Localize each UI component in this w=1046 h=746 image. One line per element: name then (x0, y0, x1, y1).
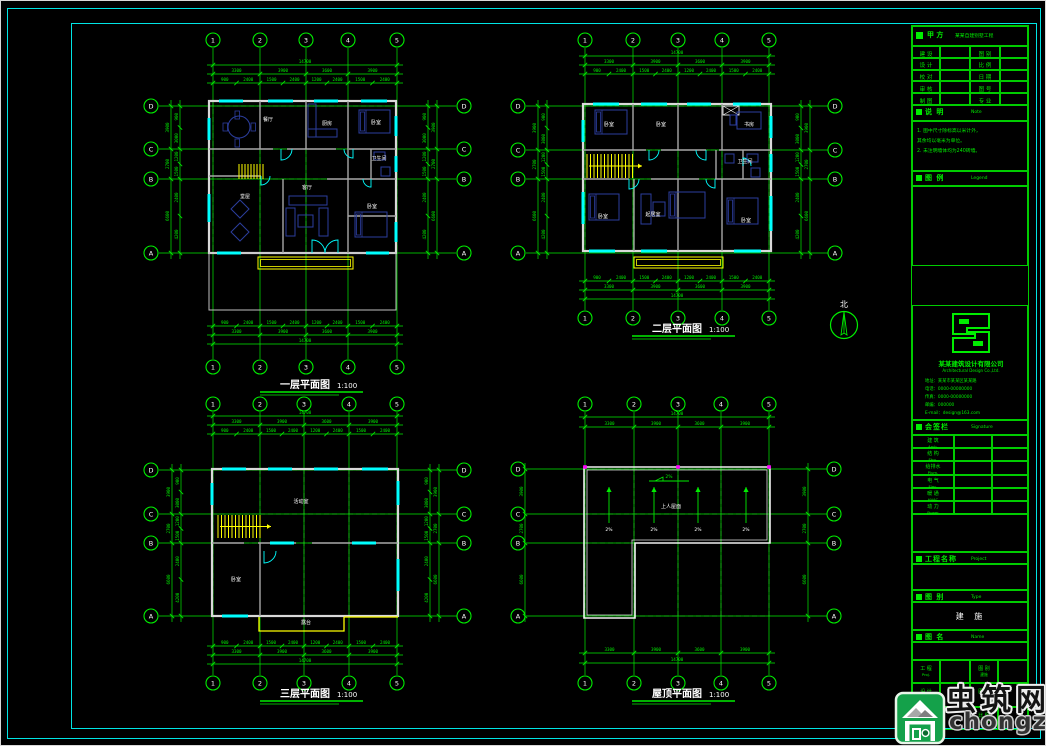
svg-text:2700: 2700 (165, 158, 170, 169)
svg-text:3900: 3900 (740, 421, 751, 426)
svg-text:1:100: 1:100 (337, 691, 357, 699)
tb-cell: 日 期 (970, 70, 1000, 82)
tb-cell: 图 号 (970, 81, 1000, 93)
svg-text:1500: 1500 (639, 68, 650, 73)
svg-text:C: C (832, 510, 837, 518)
svg-text:3900: 3900 (277, 419, 288, 424)
building: 2%2%2%2%2% (583, 465, 771, 618)
svg-text:3900: 3900 (368, 649, 379, 654)
svg-text:5: 5 (767, 679, 771, 687)
svg-text:3000: 3000 (795, 133, 800, 144)
plan-svg-4: 1122334455DDCCBBAA1470033003900360039003… (501, 391, 853, 711)
section-sub: Legend (971, 176, 988, 181)
svg-text:3900: 3900 (804, 122, 809, 133)
watermark-logo-icon (894, 691, 946, 745)
svg-text:3300: 3300 (231, 68, 242, 73)
tb-cell (940, 58, 970, 70)
section-label: 说 明 (925, 107, 944, 117)
svg-text:3600: 3600 (321, 649, 332, 654)
svg-text:2: 2 (631, 314, 635, 322)
tb-cell (940, 93, 970, 105)
svg-text:书房: 书房 (744, 121, 754, 128)
svg-text:14700: 14700 (671, 293, 684, 298)
company-contact: E-mail：design@163.com (925, 410, 980, 416)
svg-text:3300: 3300 (231, 649, 242, 654)
svg-text:3900: 3900 (740, 59, 751, 64)
section-icon (916, 175, 922, 181)
tb-cell (940, 46, 970, 58)
section-sub: Note (971, 110, 982, 115)
svg-text:900: 900 (795, 113, 800, 121)
svg-text:A: A (149, 249, 154, 257)
svg-text:3: 3 (304, 36, 308, 44)
svg-text:卧室: 卧室 (367, 203, 377, 210)
svg-text:2400: 2400 (243, 428, 254, 433)
svg-text:14700: 14700 (299, 410, 312, 415)
tb-sign-cell (954, 488, 992, 501)
svg-text:1500: 1500 (266, 640, 277, 645)
svg-text:3900: 3900 (431, 122, 436, 133)
svg-text:2400: 2400 (752, 275, 763, 280)
drawing-sheet: 1122334455DDCCBBAA1470033003900360039009… (0, 0, 1046, 746)
plan-svg-3: 1122334455DDCCBBAA1470033003900360039009… (136, 391, 488, 711)
svg-text:2400: 2400 (795, 192, 800, 203)
company-contact: 电话：0000-00000000 (925, 386, 972, 392)
tb-sign-cell: 建 筑Arch. (912, 435, 954, 448)
svg-text:A: A (832, 612, 837, 620)
svg-text:2400: 2400 (424, 556, 429, 567)
svg-text:1:100: 1:100 (709, 326, 729, 334)
svg-text:1500: 1500 (355, 77, 366, 82)
company-name-en: Architectural Design Co.,Ltd. (913, 368, 1029, 373)
watermark: 虫筑网 chongzhu.cn (894, 679, 1046, 746)
svg-text:卫生间: 卫生间 (371, 155, 386, 162)
svg-text:4: 4 (347, 679, 351, 687)
tb-section-header: 图 例Legend (912, 171, 1028, 186)
north-label: 北 (840, 300, 848, 309)
svg-text:卧室: 卧室 (231, 576, 241, 583)
svg-text:2: 2 (258, 679, 262, 687)
svg-text:2700: 2700 (519, 523, 524, 534)
svg-text:卧室: 卧室 (741, 217, 751, 224)
svg-text:4: 4 (719, 679, 723, 687)
svg-text:2400: 2400 (380, 320, 391, 325)
svg-text:B: B (832, 539, 836, 547)
svg-text:1: 1 (211, 400, 215, 408)
svg-text:2400: 2400 (289, 77, 300, 82)
svg-text:D: D (461, 102, 466, 110)
tb-cell (1000, 93, 1028, 105)
svg-text:C: C (149, 510, 154, 518)
svg-text:14700: 14700 (299, 59, 312, 64)
svg-text:A: A (462, 612, 467, 620)
svg-text:1200: 1200 (684, 275, 695, 280)
svg-text:D: D (832, 102, 837, 110)
svg-text:3: 3 (302, 400, 306, 408)
svg-text:卧室: 卧室 (371, 119, 381, 126)
svg-text:3: 3 (304, 363, 308, 371)
section-label: 图 名 (925, 632, 944, 642)
svg-text:A: A (516, 612, 521, 620)
company-logo-icon (945, 312, 997, 354)
svg-text:3300: 3300 (604, 59, 615, 64)
svg-text:二层平面图: 二层平面图 (652, 323, 702, 335)
svg-text:3: 3 (676, 400, 680, 408)
svg-text:3000: 3000 (174, 133, 179, 144)
svg-text:3600: 3600 (695, 284, 706, 289)
svg-text:3: 3 (676, 679, 680, 687)
svg-text:A: A (833, 249, 838, 257)
tb-legend-box (912, 186, 1028, 266)
svg-text:3300: 3300 (604, 647, 615, 652)
svg-text:4: 4 (346, 363, 350, 371)
svg-text:1: 1 (211, 36, 215, 44)
svg-text:1: 1 (583, 679, 587, 687)
svg-text:2: 2 (631, 36, 635, 44)
svg-text:2400: 2400 (243, 320, 254, 325)
svg-text:900: 900 (422, 112, 427, 120)
tb-project-box (912, 564, 1028, 590)
svg-text:厨房: 厨房 (322, 120, 332, 127)
svg-text:2400: 2400 (541, 192, 546, 203)
svg-text:1500: 1500 (356, 640, 367, 645)
tb-sign-cell: 结 构Stru. (912, 448, 954, 461)
section-icon (916, 109, 922, 115)
svg-text:B: B (516, 175, 520, 183)
svg-text:5: 5 (767, 36, 771, 44)
tb-cell: 制 图 (912, 93, 940, 105)
svg-text:2400: 2400 (333, 428, 344, 433)
tb-section-header: 图 别Type (912, 590, 1028, 602)
svg-text:3900: 3900 (166, 486, 171, 497)
section-label: 图 例 (925, 173, 944, 183)
svg-text:上人屋面: 上人屋面 (661, 503, 681, 510)
company-contact: 地址：某某市某某区某某路 (925, 378, 977, 384)
svg-text:3900: 3900 (651, 647, 662, 652)
svg-text:2400: 2400 (752, 68, 763, 73)
section-icon (916, 424, 922, 430)
svg-text:6600: 6600 (804, 210, 809, 221)
company-contact: 邮编：000000 (925, 402, 954, 408)
tb-sign-cell (992, 475, 1028, 488)
svg-text:4200: 4200 (424, 592, 429, 603)
svg-text:1: 1 (583, 314, 587, 322)
svg-text:6600: 6600 (165, 210, 170, 221)
svg-text:D: D (831, 465, 836, 473)
svg-text:卧室: 卧室 (604, 121, 614, 128)
svg-text:3900: 3900 (650, 284, 661, 289)
sign-label: 结 构 (913, 450, 953, 457)
svg-text:D: D (515, 102, 520, 110)
svg-text:3600: 3600 (694, 421, 705, 426)
svg-text:2%: 2% (665, 474, 673, 480)
svg-text:3000: 3000 (541, 133, 546, 144)
svg-text:1200: 1200 (174, 151, 179, 162)
svg-text:D: D (461, 466, 466, 474)
section-sub: Name (971, 635, 984, 640)
svg-text:3900: 3900 (650, 59, 661, 64)
svg-text:900: 900 (593, 275, 601, 280)
tb-sign-cell: 动 力Power (912, 501, 954, 514)
svg-text:C: C (516, 146, 521, 154)
sign-label: 暖 通 (913, 490, 953, 497)
tb-cell (940, 70, 970, 82)
tb-cell: 图 别 (970, 46, 1000, 58)
svg-text:6600: 6600 (532, 210, 537, 221)
svg-text:2%: 2% (742, 527, 750, 533)
section-sub: Type (971, 595, 981, 600)
svg-text:3600: 3600 (322, 68, 333, 73)
svg-text:1200: 1200 (310, 640, 321, 645)
svg-text:1500: 1500 (266, 77, 277, 82)
svg-text:2: 2 (632, 679, 636, 687)
svg-text:2: 2 (258, 400, 262, 408)
svg-text:14700: 14700 (299, 338, 312, 343)
svg-text:3900: 3900 (802, 486, 807, 497)
svg-text:1500: 1500 (175, 530, 180, 541)
svg-text:5: 5 (395, 679, 399, 687)
svg-text:900: 900 (221, 320, 229, 325)
svg-text:B: B (462, 539, 466, 547)
svg-text:6600: 6600 (431, 210, 436, 221)
svg-text:3: 3 (302, 679, 306, 687)
tb-sign-cell (992, 488, 1028, 501)
svg-text:2400: 2400 (380, 77, 391, 82)
tb-name-box (912, 642, 1028, 660)
svg-text:餐厅: 餐厅 (263, 116, 273, 123)
svg-text:3900: 3900 (367, 329, 378, 334)
svg-text:A: A (516, 249, 521, 257)
sign-label: 电 气 (913, 477, 953, 484)
svg-text:1200: 1200 (310, 428, 321, 433)
tb-owner: 甲 方某某自建别墅工程 (912, 26, 1028, 46)
svg-text:1200: 1200 (175, 516, 180, 527)
tb-logo-box: 某某建筑设计有限公司Architectural Design Co.,Ltd.地… (912, 305, 1028, 420)
svg-text:2400: 2400 (174, 192, 179, 203)
svg-text:2400: 2400 (288, 640, 299, 645)
svg-text:B: B (516, 539, 520, 547)
section-label: 图 别 (925, 592, 944, 602)
svg-text:一层平面图: 一层平面图 (280, 379, 330, 391)
svg-text:3900: 3900 (278, 329, 289, 334)
svg-text:卧室: 卧室 (656, 121, 666, 128)
svg-text:3000: 3000 (422, 133, 427, 144)
svg-text:1500: 1500 (355, 320, 366, 325)
svg-text:1: 1 (211, 679, 215, 687)
svg-text:3: 3 (676, 36, 680, 44)
bottom-sub: Proj. (913, 672, 939, 677)
svg-text:1500: 1500 (729, 275, 740, 280)
svg-text:3900: 3900 (433, 486, 438, 497)
tb-sign-cell: 给排水Plum. (912, 461, 954, 474)
svg-text:2%: 2% (694, 527, 702, 533)
bottom-label: 图 别 (971, 665, 997, 672)
svg-text:6600: 6600 (519, 574, 524, 585)
svg-text:2700: 2700 (166, 523, 171, 534)
svg-text:卧室: 卧室 (598, 213, 608, 220)
svg-text:4200: 4200 (422, 229, 427, 240)
svg-text:1200: 1200 (541, 152, 546, 163)
tb-blank (912, 514, 1028, 552)
svg-text:2400: 2400 (422, 192, 427, 203)
svg-text:B: B (149, 539, 153, 547)
svg-text:900: 900 (593, 68, 601, 73)
svg-text:1200: 1200 (424, 516, 429, 527)
tb-cell: 审 核 (912, 81, 940, 93)
svg-text:4: 4 (720, 36, 724, 44)
svg-text:3900: 3900 (532, 122, 537, 133)
plan-svg-2: 1122334455DDCCBBAA1470033003900360039009… (501, 26, 853, 350)
svg-text:1200: 1200 (795, 152, 800, 163)
svg-text:3000: 3000 (424, 497, 429, 508)
svg-text:1500: 1500 (266, 320, 277, 325)
svg-text:1500: 1500 (541, 166, 546, 177)
owner-value: 某某自建别墅工程 (955, 32, 993, 39)
section-icon (916, 634, 922, 640)
tb-cell: 比 例 (970, 58, 1000, 70)
tb-section-header: 说 明Note (912, 105, 1028, 121)
svg-text:3900: 3900 (651, 421, 662, 426)
svg-text:3900: 3900 (368, 419, 379, 424)
svg-text:1500: 1500 (266, 428, 277, 433)
roof-plan: 1122334455DDCCBBAA1470033003900360039003… (501, 391, 853, 715)
svg-text:1500: 1500 (795, 166, 800, 177)
svg-text:1500: 1500 (729, 68, 740, 73)
svg-text:2400: 2400 (243, 77, 254, 82)
owner-label: 甲 方 (927, 30, 943, 40)
svg-text:3900: 3900 (367, 68, 378, 73)
watermark-site-url: chongzhu.cn (949, 709, 1046, 735)
svg-text:A: A (149, 612, 154, 620)
svg-text:B: B (833, 175, 837, 183)
svg-text:4200: 4200 (541, 229, 546, 240)
svg-text:14700: 14700 (671, 411, 684, 416)
svg-text:B: B (149, 175, 153, 183)
tb-sign-cell (992, 448, 1028, 461)
svg-text:B: B (462, 175, 466, 183)
drawing-type-value: 建 施 (913, 611, 1029, 622)
svg-text:6600: 6600 (802, 574, 807, 585)
svg-text:1: 1 (211, 363, 215, 371)
tb-sign-cell: 暖 通HVAC (912, 488, 954, 501)
svg-text:3600: 3600 (321, 419, 332, 424)
svg-text:1: 1 (583, 400, 587, 408)
note-line: 其余均以毫米为单位。 (917, 137, 965, 144)
svg-text:2700: 2700 (802, 523, 807, 534)
svg-text:2400: 2400 (332, 320, 343, 325)
svg-text:3300: 3300 (604, 421, 615, 426)
section-label: 工程名称 (925, 554, 957, 564)
plan-title: 屋顶平面图1:100 (632, 688, 735, 704)
svg-text:三层平面图: 三层平面图 (280, 688, 330, 700)
dimensions: 1470033003900360039003300390036003900147… (519, 411, 810, 665)
svg-text:4200: 4200 (795, 229, 800, 240)
tb-sign-cell (954, 435, 992, 448)
owner-icon (916, 32, 923, 39)
svg-text:屋顶平面图: 屋顶平面图 (652, 688, 702, 700)
svg-text:3300: 3300 (231, 329, 242, 334)
svg-text:4: 4 (346, 36, 350, 44)
svg-text:1500: 1500 (356, 428, 367, 433)
svg-text:2700: 2700 (532, 159, 537, 170)
third-floor-plan: 1122334455DDCCBBAA1470033003900360039009… (136, 391, 488, 715)
svg-text:14700: 14700 (671, 50, 684, 55)
svg-text:3900: 3900 (278, 68, 289, 73)
tb-cell: 专 业 (970, 93, 1000, 105)
svg-text:5: 5 (395, 363, 399, 371)
tb-cell: 校 对 (912, 70, 940, 82)
svg-text:1200: 1200 (311, 77, 322, 82)
svg-text:5: 5 (395, 400, 399, 408)
svg-text:2700: 2700 (804, 159, 809, 170)
svg-text:堂屋: 堂屋 (240, 193, 250, 200)
svg-text:2400: 2400 (380, 640, 391, 645)
plan-title: 三层平面图1:100 (260, 688, 363, 704)
svg-text:6600: 6600 (166, 574, 171, 585)
tb-section-header: 图 名Name (912, 630, 1028, 642)
svg-text:2400: 2400 (288, 428, 299, 433)
dimensions: 1470033003900360039009002400150024001200… (165, 59, 439, 346)
svg-text:6600: 6600 (433, 574, 438, 585)
svg-text:1:100: 1:100 (709, 691, 729, 699)
tb-cell (1000, 46, 1028, 58)
tb-sign-cell (992, 461, 1028, 474)
svg-text:2700: 2700 (433, 523, 438, 534)
tb-cell (1000, 81, 1028, 93)
svg-text:3900: 3900 (519, 486, 524, 497)
first-floor-plan: 1122334455DDCCBBAA1470033003900360039009… (131, 26, 483, 424)
company-contact: 传真：0000-00000000 (925, 394, 972, 400)
svg-text:C: C (462, 510, 467, 518)
svg-text:3300: 3300 (231, 419, 242, 424)
tb-cell (940, 81, 970, 93)
section-label: 会签栏 (925, 422, 949, 432)
title-block: 甲 方某某自建别墅工程建 设图 别设 计比 例校 对日 期审 核图 号制 图专 … (911, 25, 1029, 730)
svg-text:4200: 4200 (175, 592, 180, 603)
svg-text:900: 900 (221, 640, 229, 645)
svg-text:900: 900 (541, 113, 546, 121)
sign-label: 建 筑 (913, 437, 953, 444)
svg-text:D: D (515, 465, 520, 473)
tb-notes: 1. 图中尺寸除标高以米计外， 其余均以毫米为单位。2. 未注明墙体均为240砖… (912, 121, 1028, 171)
svg-text:D: D (148, 102, 153, 110)
svg-text:起居室: 起居室 (645, 211, 660, 218)
svg-text:900: 900 (221, 77, 229, 82)
note-line: 1. 图中尺寸除标高以米计外， (917, 127, 981, 134)
bottom-label: 工 程 (913, 665, 939, 672)
svg-text:2400: 2400 (706, 68, 717, 73)
svg-text:C: C (462, 145, 467, 153)
svg-text:2400: 2400 (616, 275, 627, 280)
svg-text:2: 2 (632, 400, 636, 408)
tb-cell (1000, 70, 1028, 82)
svg-text:2: 2 (258, 363, 262, 371)
svg-text:3300: 3300 (604, 284, 615, 289)
svg-text:2400: 2400 (333, 640, 344, 645)
svg-text:4: 4 (719, 400, 723, 408)
svg-text:活动室: 活动室 (293, 498, 308, 505)
svg-text:2%: 2% (650, 527, 658, 533)
svg-text:5: 5 (767, 314, 771, 322)
svg-text:1200: 1200 (311, 320, 322, 325)
svg-text:卫生间: 卫生间 (737, 158, 752, 165)
section-sub: Project (971, 557, 986, 562)
tb-section-header: 会签栏Signature (912, 420, 1028, 435)
svg-text:3600: 3600 (694, 647, 705, 652)
svg-text:2400: 2400 (380, 428, 391, 433)
svg-text:3000: 3000 (175, 497, 180, 508)
svg-text:A: A (462, 249, 467, 257)
